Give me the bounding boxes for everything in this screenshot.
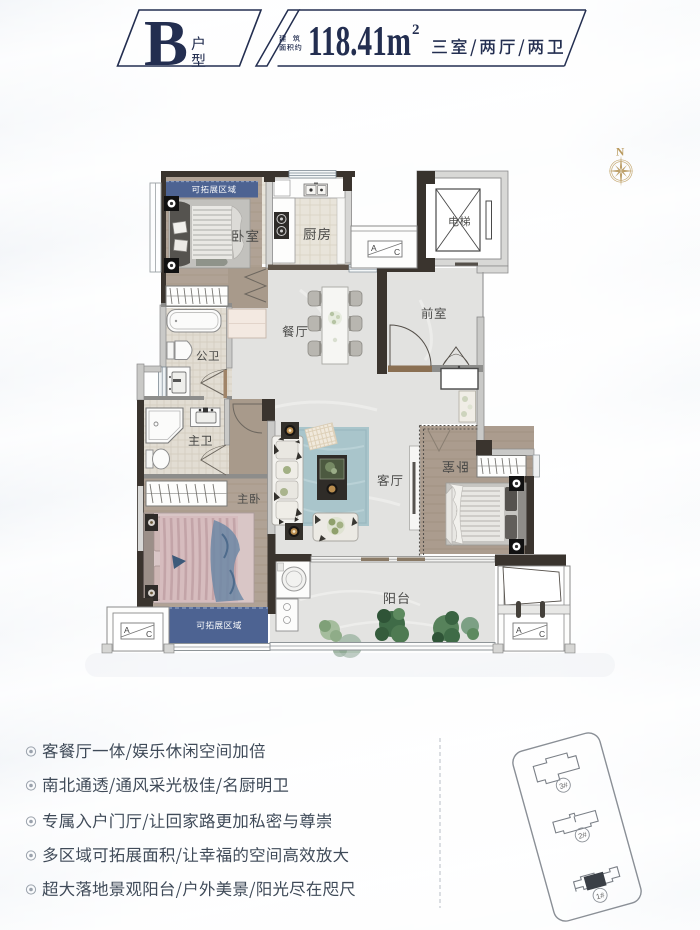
svg-text:1#: 1# (595, 890, 606, 901)
svg-text:C: C (539, 629, 545, 639)
svg-text:C: C (146, 629, 152, 639)
svg-text:A: A (516, 625, 522, 635)
svg-text:2#: 2# (577, 830, 588, 841)
svg-text:A: A (371, 243, 377, 253)
svg-text:3#: 3# (558, 780, 569, 791)
svg-text:A: A (124, 625, 130, 635)
svg-text:C: C (394, 247, 400, 257)
